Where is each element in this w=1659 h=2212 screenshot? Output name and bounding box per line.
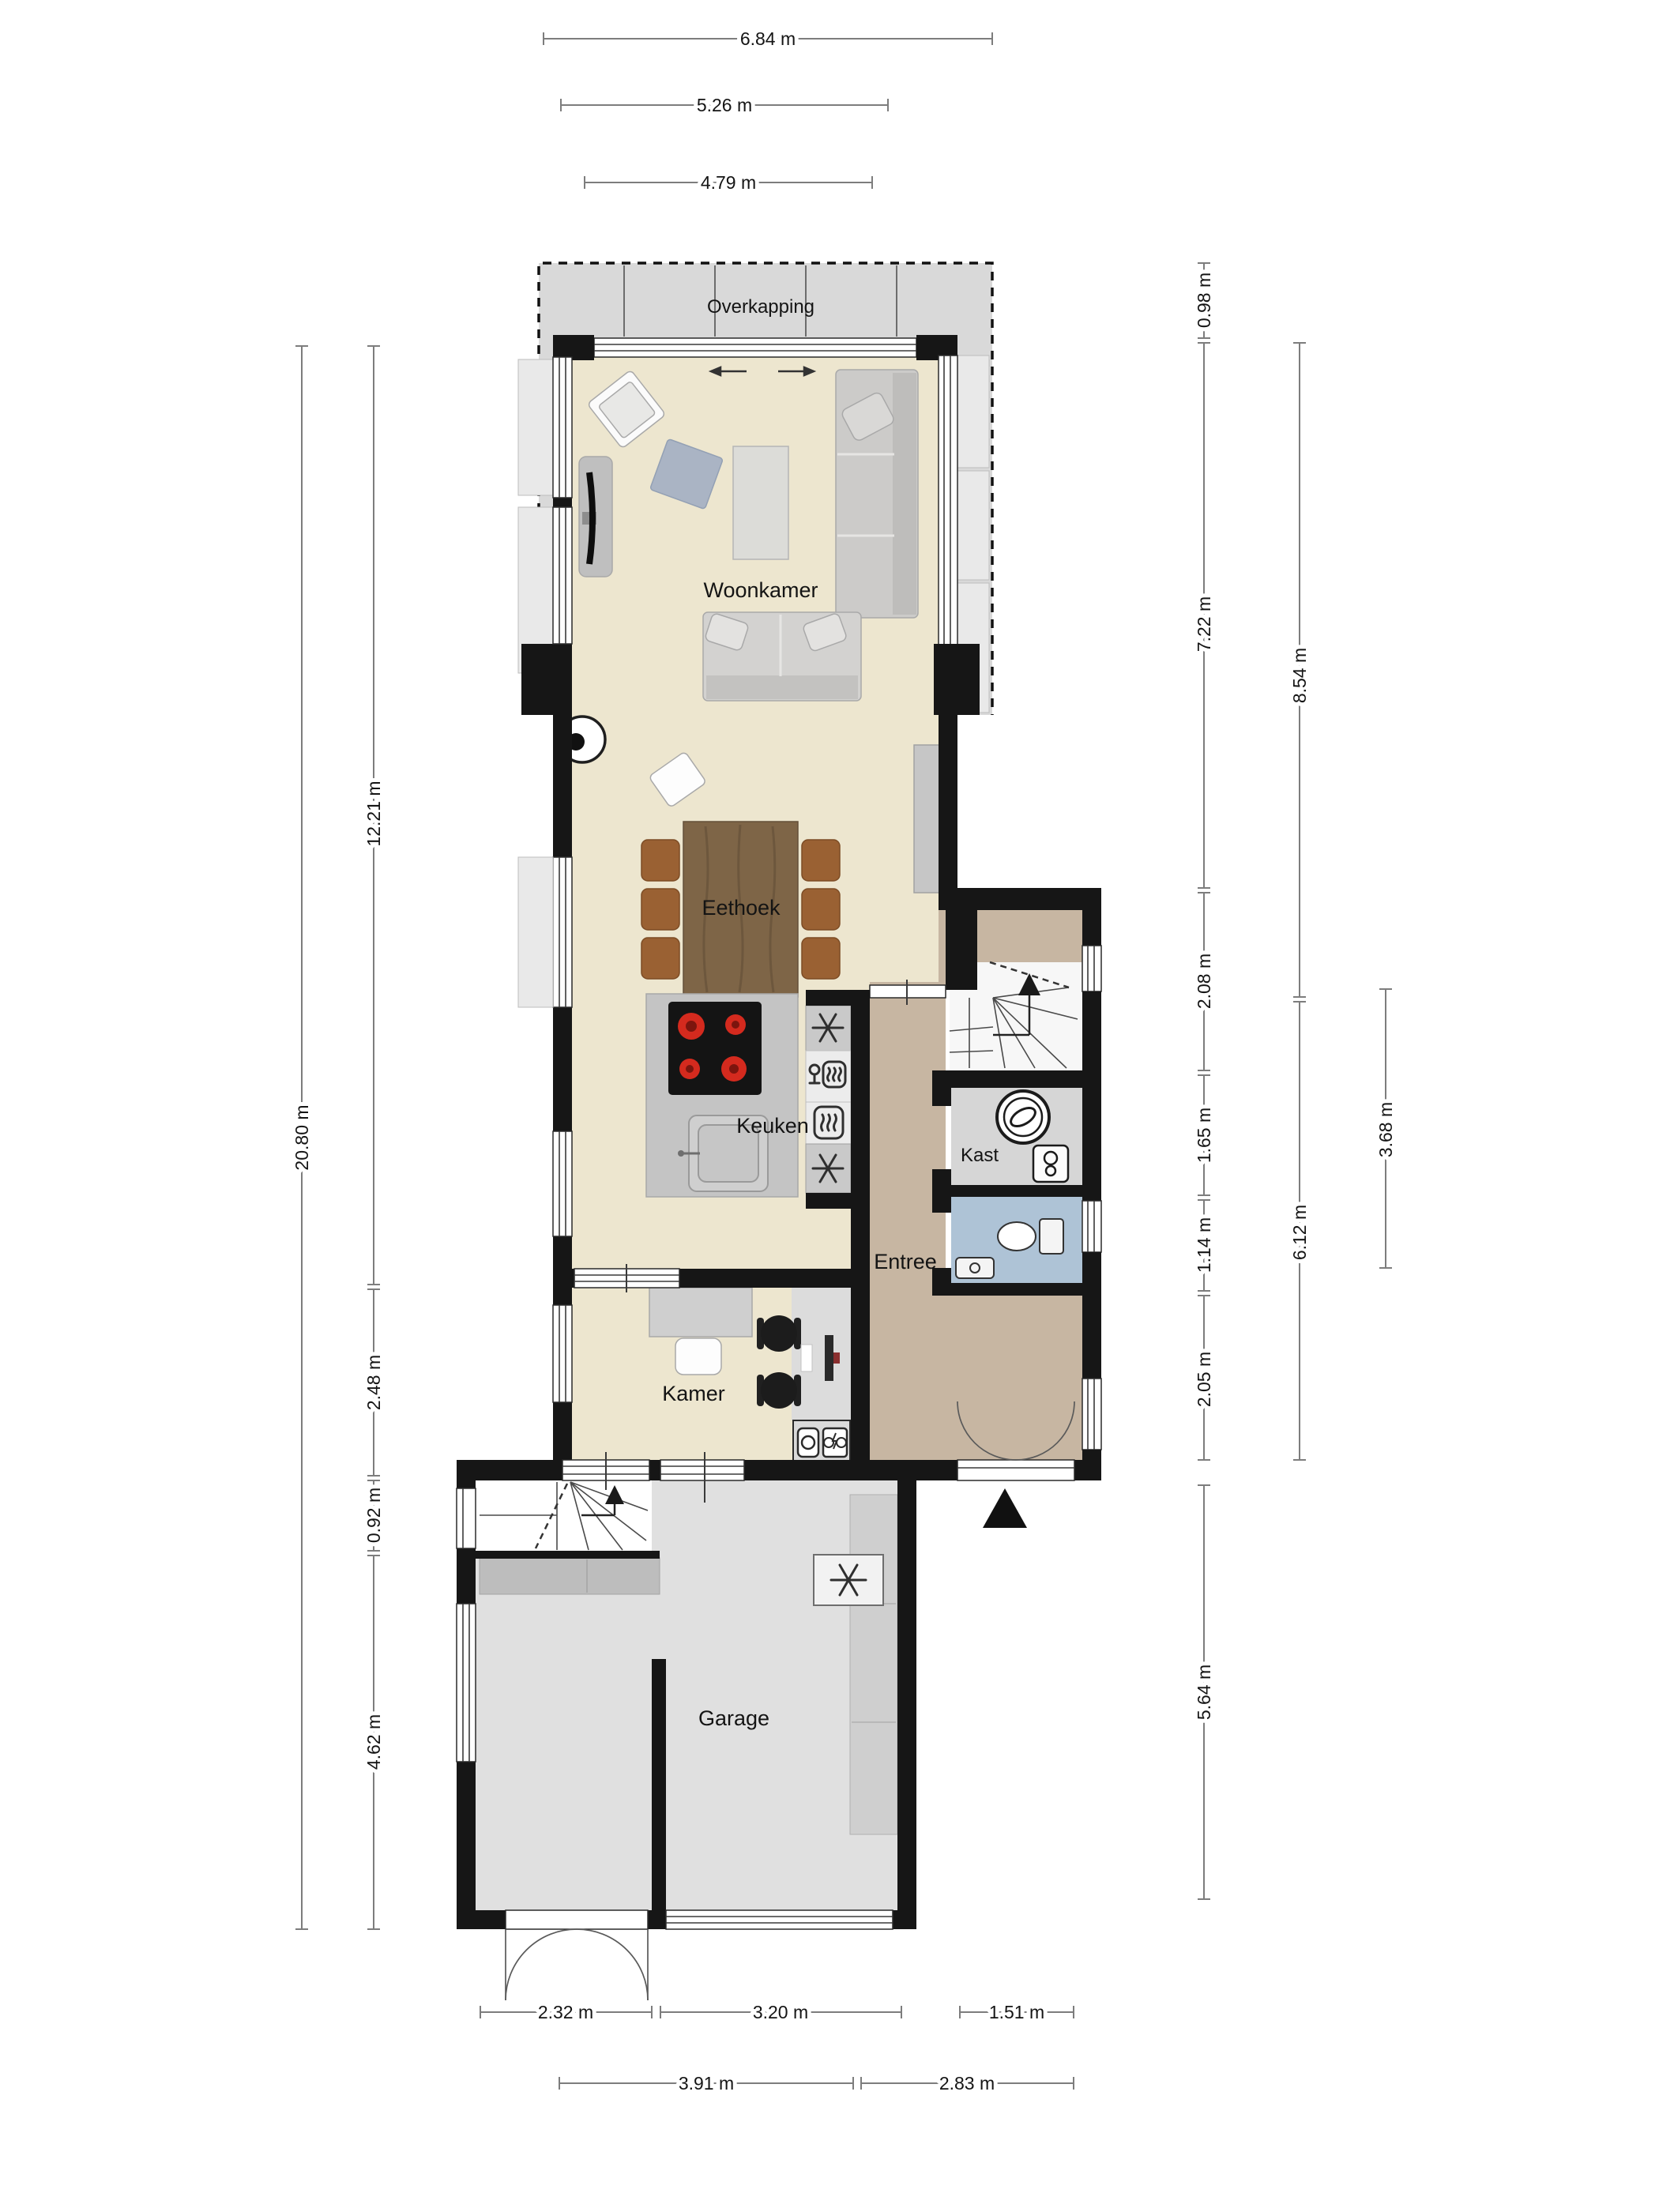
dim-bottom-391: 3.91 m: [559, 2073, 853, 2093]
corner-post: [553, 335, 594, 360]
room-label-entree: Entree: [874, 1250, 937, 1273]
hob-burner-center: [732, 1021, 739, 1029]
window-wall: [939, 355, 957, 645]
svg-text:2.08 m: 2.08 m: [1194, 954, 1214, 1009]
front-door-threshold: [957, 1460, 1074, 1480]
garage-counter: [480, 1558, 660, 1594]
svg-text:6.12 m: 6.12 m: [1289, 1205, 1310, 1260]
svg-text:0.98 m: 0.98 m: [1194, 273, 1214, 328]
dim-bottom-320: 3.20 m: [660, 2002, 901, 2022]
garage-door-swing: [506, 1929, 577, 2000]
garage-partition-wall: [652, 1659, 666, 1910]
washbasin-icon: [956, 1258, 994, 1278]
sofa-horizontal-back: [706, 675, 858, 699]
dim-bottom-151: 1.51 m: [960, 2002, 1074, 2022]
sofa-vertical-back: [893, 373, 916, 615]
keyboard: [801, 1345, 812, 1371]
electric-meter-icon: [823, 1428, 847, 1457]
svg-text:2.48 m: 2.48 m: [363, 1355, 384, 1410]
svg-text:1.51 m: 1.51 m: [989, 2002, 1044, 2022]
window: [457, 1488, 476, 1548]
sink-faucet-dot: [678, 1150, 684, 1157]
garage-cabinets: [850, 1495, 897, 1834]
window: [553, 1131, 572, 1236]
window: [553, 857, 572, 1007]
room-label-garage: Garage: [698, 1706, 769, 1730]
dim-right-854: 8.54 m: [1289, 343, 1310, 997]
dim-right-098: 0.98 m: [1194, 263, 1214, 338]
svg-text:2.83 m: 2.83 m: [939, 2073, 995, 2093]
room-label-keuken: Keuken: [736, 1114, 809, 1138]
window-sill: [518, 857, 553, 1007]
hob-icon: [668, 1002, 762, 1095]
hob-burner-center: [686, 1065, 694, 1073]
window: [457, 1604, 476, 1762]
hob-burner-center: [729, 1064, 739, 1074]
room-label-overkapping: Overkapping: [707, 296, 814, 318]
floor-entree-hall: [946, 1296, 1082, 1461]
dining-chair: [802, 938, 840, 979]
svg-text:4.79 m: 4.79 m: [701, 172, 756, 193]
dim-left-248: 2.48 m: [363, 1289, 384, 1476]
office-chair: [757, 1315, 801, 1352]
dim-bottom-283: 2.83 m: [861, 2073, 1074, 2093]
dim-bottom-232: 2.32 m: [480, 2002, 652, 2022]
window: [1082, 1201, 1101, 1252]
svg-text:0.92 m: 0.92 m: [363, 1488, 384, 1543]
dim-right-368: 3.68 m: [1375, 989, 1396, 1268]
dim-right-564: 5.64 m: [1194, 1485, 1214, 1899]
meter-cupboard: [793, 1420, 850, 1465]
tv-icon: [589, 472, 592, 564]
window-sill: [957, 471, 989, 580]
room-label-woonkamer: Woonkamer: [703, 578, 818, 602]
hob-burner-center: [686, 1021, 697, 1032]
svg-text:8.54 m: 8.54 m: [1289, 648, 1310, 703]
dining-chair: [641, 938, 679, 979]
svg-text:3.20 m: 3.20 m: [753, 2002, 808, 2022]
dining-chair: [802, 840, 840, 881]
floorplan-page: Overkapping Woonkamer Eethoek Keuken Kas…: [0, 0, 1659, 2212]
window: [553, 1305, 572, 1402]
monitor-stand: [833, 1352, 840, 1364]
window: [553, 357, 572, 498]
svg-text:7.22 m: 7.22 m: [1194, 596, 1214, 652]
appliance-strip: [806, 1006, 851, 1193]
dining-chair: [802, 889, 840, 930]
svg-text:4.62 m: 4.62 m: [363, 1714, 384, 1770]
room-label-kamer: Kamer: [662, 1382, 725, 1405]
dim-left-462: 4.62 m: [363, 1556, 384, 1929]
toilet-icon: [998, 1222, 1036, 1251]
svg-text:12.21 m: 12.21 m: [363, 781, 384, 846]
floor-entree-corridor: [870, 982, 946, 1461]
dim-left-1221: 12.21 m: [363, 346, 384, 1285]
coffee-table: [733, 446, 788, 559]
desk-chair-white: [675, 1338, 721, 1375]
svg-text:1.14 m: 1.14 m: [1194, 1217, 1214, 1273]
dining-chair: [641, 889, 679, 930]
kitchen-island: [646, 994, 798, 1197]
svg-text:2.32 m: 2.32 m: [538, 2002, 593, 2022]
floorplan-canvas: Overkapping Woonkamer Eethoek Keuken Kas…: [0, 0, 1659, 2212]
toilet-tank: [1040, 1219, 1063, 1254]
dim-left-092: 0.92 m: [363, 1480, 384, 1551]
window: [1082, 1379, 1101, 1450]
desk: [649, 1288, 752, 1337]
interior-window: [660, 1460, 744, 1480]
room-label-eethoek: Eethoek: [702, 896, 781, 920]
svg-text:3.91 m: 3.91 m: [679, 2073, 734, 2093]
monitor-icon: [825, 1335, 833, 1381]
window: [1082, 946, 1101, 991]
room-label-kast: Kast: [961, 1145, 999, 1166]
svg-text:3.68 m: 3.68 m: [1375, 1102, 1396, 1157]
dim-top-1: 6.84 m: [544, 28, 992, 49]
dim-right-208: 2.08 m: [1194, 893, 1214, 1070]
svg-text:20.80 m: 20.80 m: [292, 1104, 312, 1170]
dim-left-2080: 20.80 m: [292, 346, 312, 1929]
window-sill: [518, 359, 553, 495]
garage-double-door: [506, 1910, 648, 1929]
svg-text:2.05 m: 2.05 m: [1194, 1352, 1214, 1407]
svg-text:1.65 m: 1.65 m: [1194, 1108, 1214, 1163]
dim-right-205: 2.05 m: [1194, 1296, 1214, 1460]
window: [553, 507, 572, 644]
sliding-door-window: [594, 338, 916, 357]
garage-sectional-door: [666, 1910, 893, 1929]
svg-text:5.64 m: 5.64 m: [1194, 1665, 1214, 1720]
dining-chair: [641, 840, 679, 881]
dim-top-2: 5.26 m: [561, 95, 888, 115]
wall-pier-right: [934, 644, 980, 715]
window-sill: [957, 355, 989, 468]
office-chair: [757, 1372, 801, 1409]
dim-right-165: 1.65 m: [1194, 1075, 1214, 1195]
wall-pier-left: [521, 644, 572, 715]
dim-right-722: 7.22 m: [1194, 343, 1214, 888]
entrance-arrow-icon: [983, 1488, 1027, 1528]
svg-text:5.26 m: 5.26 m: [697, 95, 752, 115]
dim-right-612: 6.12 m: [1289, 1002, 1310, 1460]
svg-text:6.84 m: 6.84 m: [740, 28, 796, 49]
garage-door-swing: [577, 1929, 648, 2000]
dim-right-114: 1.14 m: [1194, 1200, 1214, 1291]
dim-top-3: 4.79 m: [585, 172, 872, 193]
